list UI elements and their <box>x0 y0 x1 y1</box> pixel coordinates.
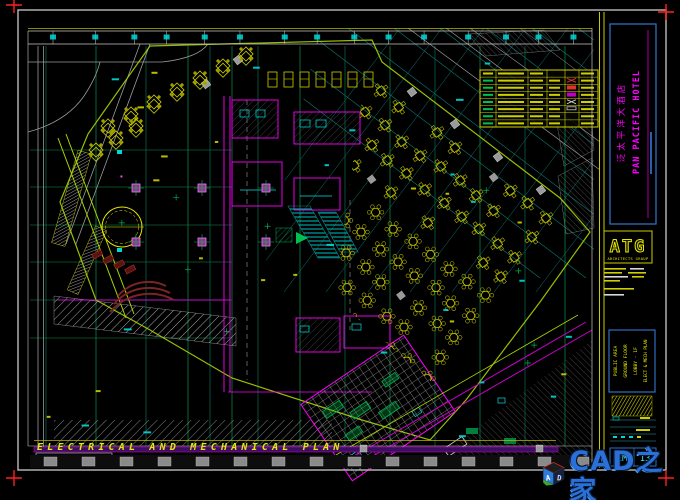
atg-logo-text: ATG <box>610 237 647 257</box>
hotel-name-en: PAN PACIFIC HOTEL <box>632 70 642 174</box>
sheet-info-box: PUBLIC AREA GROUND FLOOR LOBBY - 1F ELEC… <box>609 330 655 392</box>
ramp-hatch <box>52 134 332 446</box>
legend-table <box>480 70 598 127</box>
registration-mark-icon <box>6 0 22 13</box>
registration-mark-icon <box>6 470 22 486</box>
consultant-fine-print <box>604 268 646 296</box>
sheet-line-3: LOBBY - 1F <box>633 347 639 375</box>
drawing-number: 13 <box>640 454 651 464</box>
sheet-line-4: ELECT & MECH PLAN <box>643 339 648 382</box>
approval-stamp <box>612 396 652 416</box>
cad-screenshot: ELECTRICAL AND MECHANICAL PLAN SCALE 1/1… <box>0 0 680 500</box>
title-block: 泛太平洋大酒店 PAN PACIFIC HOTEL ATG ARCHITECTS… <box>600 12 657 468</box>
sheet-line-2: GROUND FLOOR <box>623 344 629 377</box>
atg-logo-subtext: ARCHITECTS GROUP <box>607 257 648 261</box>
revision-rows <box>610 417 656 441</box>
floor-plan-canvas: ELECTRICAL AND MECHANICAL PLAN SCALE 1/1… <box>0 0 680 500</box>
drawing-number-box: EM 13 <box>610 448 656 466</box>
registration-mark-icon <box>658 470 674 486</box>
escalators <box>288 206 358 258</box>
registration-mark-icon <box>658 4 674 20</box>
drawing-number-prefix: EM <box>617 454 628 464</box>
project-name-box: 泛太平洋大酒店 PAN PACIFIC HOTEL <box>610 24 656 224</box>
restaurant-tables <box>330 80 557 411</box>
section-blocks <box>30 455 590 468</box>
atg-logo-box: ATG ARCHITECTS GROUP <box>604 231 652 263</box>
plan-title: ELECTRICAL AND MECHANICAL PLAN <box>37 442 344 453</box>
hotel-name-cn: 泛太平洋大酒店 <box>616 82 627 163</box>
sheet-line-1: PUBLIC AREA <box>613 346 619 377</box>
